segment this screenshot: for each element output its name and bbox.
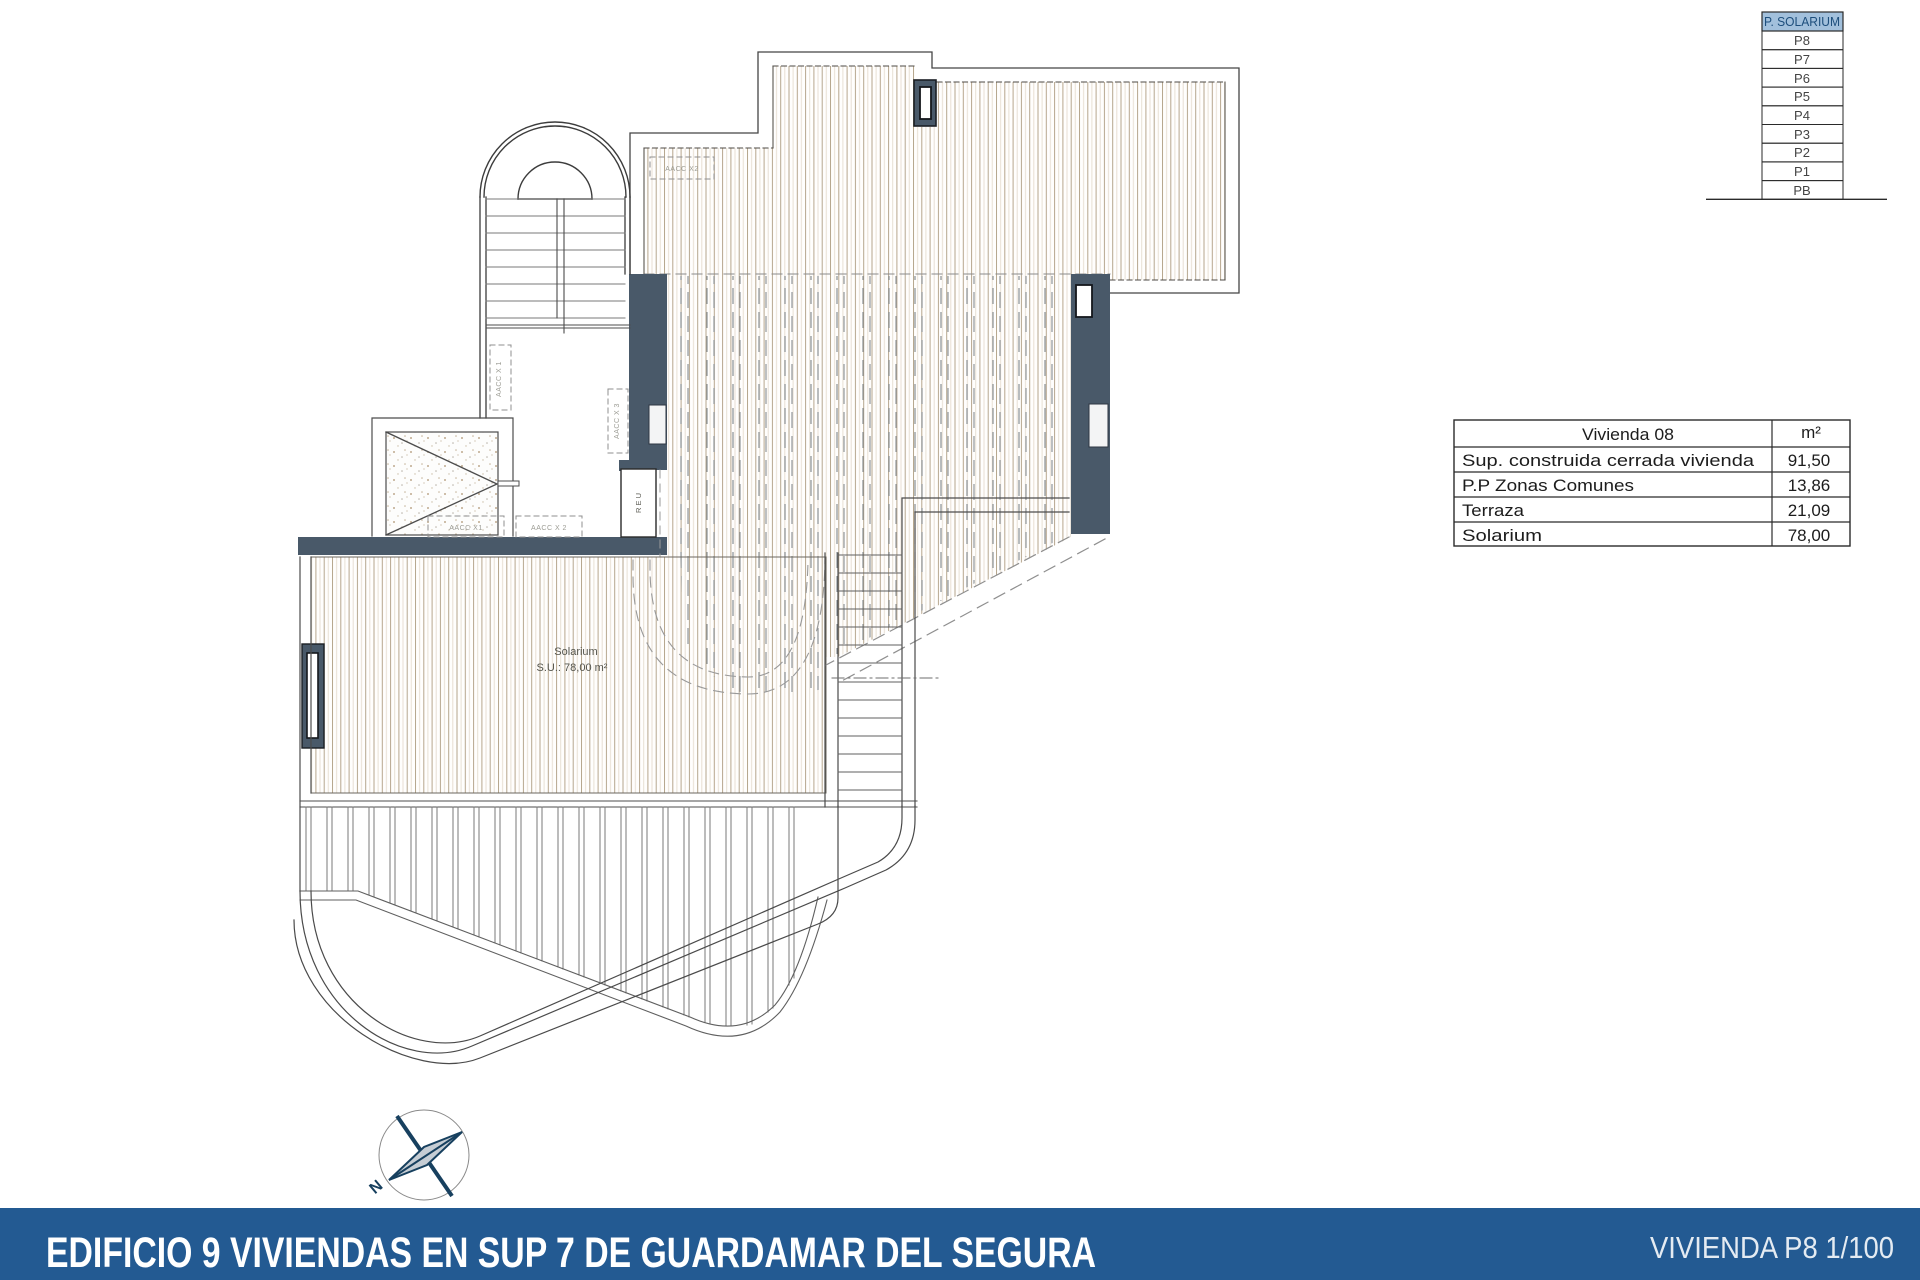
svg-text:P3: P3 [1794, 127, 1810, 142]
svg-text:m²: m² [1801, 423, 1821, 442]
svg-text:91,50: 91,50 [1788, 451, 1831, 470]
svg-text:N: N [367, 1177, 387, 1197]
svg-text:R E U: R E U [634, 493, 643, 513]
svg-text:P1: P1 [1794, 164, 1810, 179]
svg-text:21,09: 21,09 [1788, 501, 1831, 520]
svg-text:AACC X 2: AACC X 2 [531, 525, 567, 532]
svg-text:Solarium: Solarium [1462, 526, 1542, 545]
svg-text:P7: P7 [1794, 52, 1810, 67]
svg-text:EDIFICIO 9 VIVIENDAS EN SUP 7: EDIFICIO 9 VIVIENDAS EN SUP 7 DE GUARDAM… [46, 1229, 1096, 1277]
svg-text:P2: P2 [1794, 145, 1810, 160]
svg-text:13,86: 13,86 [1788, 476, 1831, 495]
svg-text:VIVIENDA P8 1/100: VIVIENDA P8 1/100 [1650, 1230, 1894, 1265]
svg-text:Solarium: Solarium [554, 646, 597, 658]
svg-text:P8: P8 [1794, 33, 1810, 48]
svg-text:S.U.: 78,00 m²: S.U.: 78,00 m² [537, 662, 608, 674]
svg-text:AACC X2: AACC X2 [665, 166, 698, 173]
svg-text:P5: P5 [1794, 89, 1810, 104]
svg-text:Terraza: Terraza [1462, 501, 1525, 520]
svg-text:PB: PB [1793, 183, 1810, 198]
svg-text:P. SOLARIUM: P. SOLARIUM [1764, 14, 1840, 29]
svg-text:Vivienda 08: Vivienda 08 [1582, 425, 1674, 444]
svg-text:P.P Zonas Comunes: P.P Zonas Comunes [1462, 476, 1634, 495]
svg-text:AACC X 1: AACC X 1 [496, 361, 503, 397]
svg-text:P6: P6 [1794, 71, 1810, 86]
svg-text:AACC X 3: AACC X 3 [614, 403, 621, 439]
svg-text:78,00: 78,00 [1788, 526, 1831, 545]
svg-text:Sup. construida cerrada vivien: Sup. construida cerrada vivienda [1462, 451, 1755, 470]
svg-text:AACC X1: AACC X1 [449, 525, 482, 532]
svg-text:P4: P4 [1794, 108, 1810, 123]
